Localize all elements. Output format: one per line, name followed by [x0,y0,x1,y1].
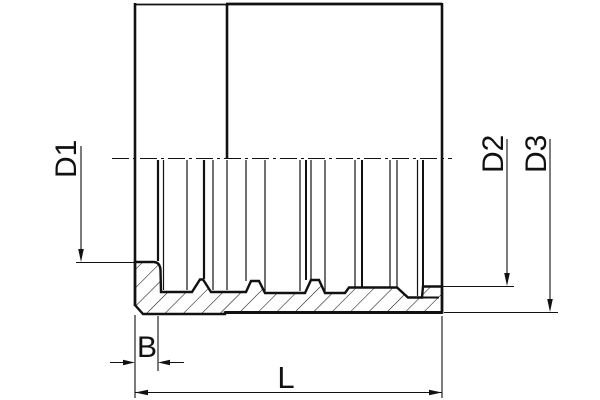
dim-d2-arrow [504,273,510,286]
dim-d1 [76,146,135,263]
dim-d1-label: D1 [50,140,83,178]
bore-serration-edges [158,160,439,298]
ferrule-technical-drawing: D1 D2 D3 B L [0,0,600,400]
dim-l-arrow-left [135,390,148,395]
dim-d2-label: D2 [477,135,510,173]
dim-d1-arrow [78,249,84,262]
dim-b-arrow-left [123,360,135,365]
dim-l-arrow-right [429,390,442,395]
dim-b-label: B [137,331,157,364]
dim-d3-label: D3 [520,135,553,173]
hatched-wall [135,262,442,314]
dim-d3-arrow [547,299,553,312]
dim-l-label: L [277,360,294,395]
dim-b-arrow-right [158,360,170,365]
drawing-canvas: D1 D2 D3 B L [0,0,600,400]
section-cut-region [135,262,442,314]
